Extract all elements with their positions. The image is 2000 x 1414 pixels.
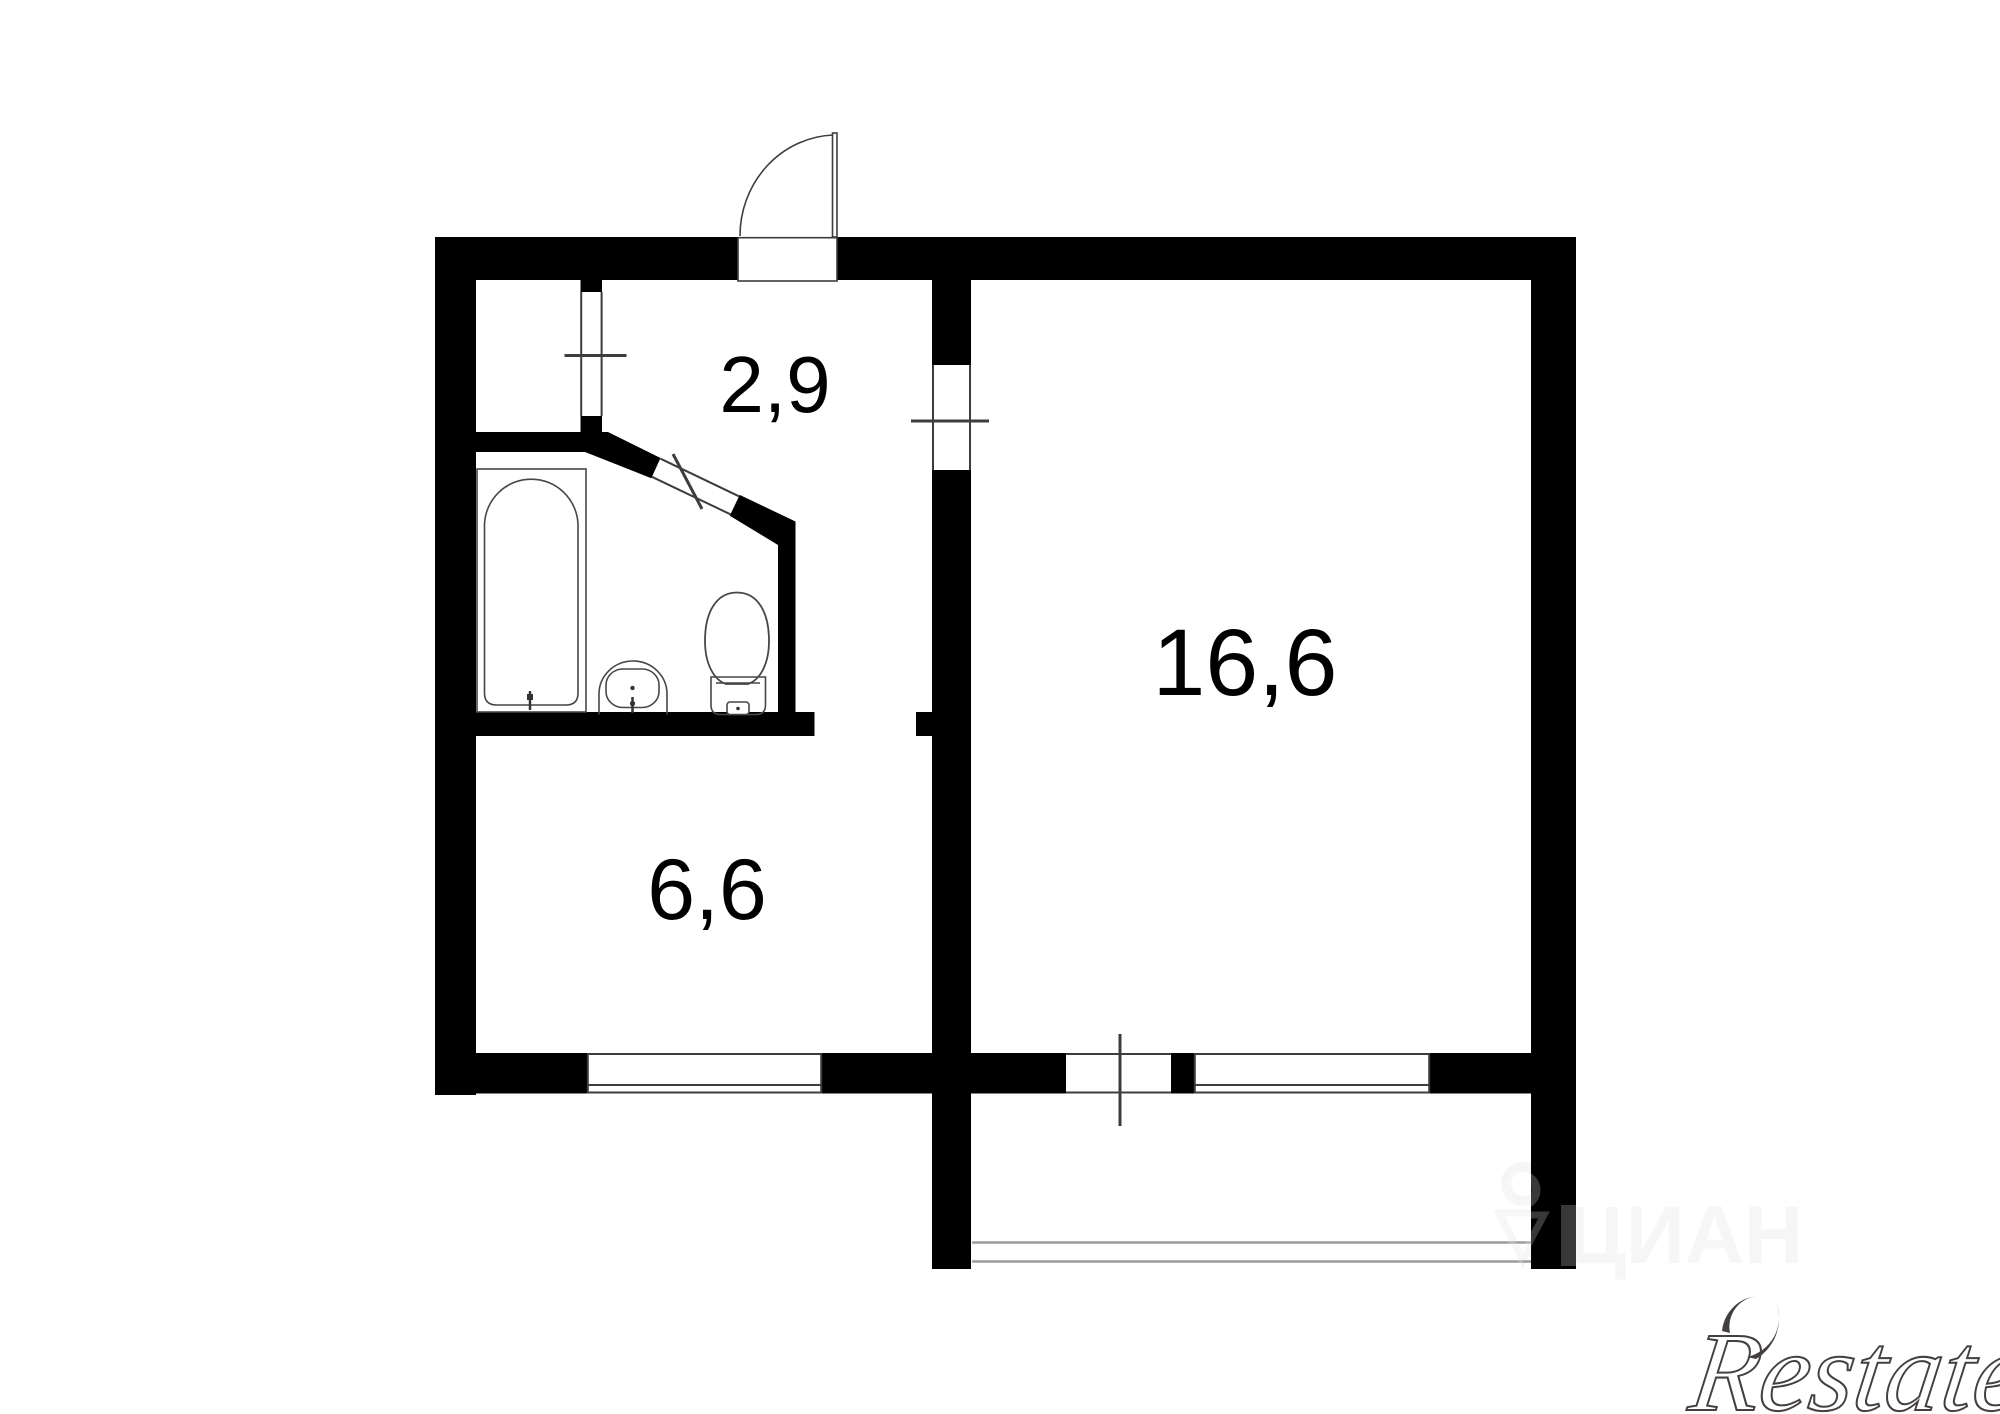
svg-text:Restate: Restate <box>1683 1309 2000 1414</box>
svg-text:2,9: 2,9 <box>719 340 830 429</box>
svg-text:6,6: 6,6 <box>647 842 767 938</box>
svg-text:ЦИАН: ЦИАН <box>1566 1190 1803 1281</box>
svg-text:16,6: 16,6 <box>1153 610 1338 716</box>
